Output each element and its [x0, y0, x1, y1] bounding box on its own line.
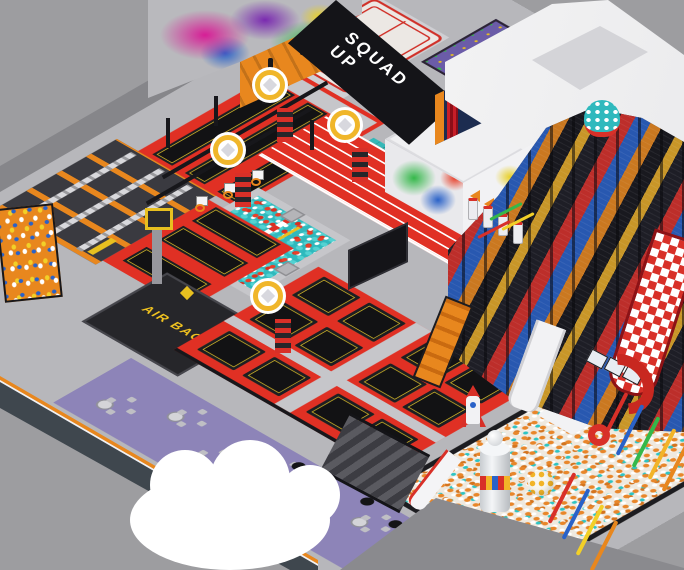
tower-ball [487, 430, 503, 446]
entrance-turnstile [513, 222, 523, 244]
trampoline-park-render: AIR BAG [0, 0, 684, 570]
hoop-rim [223, 191, 233, 199]
chairs [359, 526, 370, 532]
ring-core [221, 143, 235, 157]
tower-stripe-band [480, 476, 510, 490]
chairs [176, 421, 187, 427]
hoop-rim [251, 178, 261, 186]
cafe-table [92, 397, 117, 412]
basketball-hoop [252, 170, 264, 180]
stage-orange-wall [435, 91, 444, 145]
cafe-table [163, 409, 188, 424]
target-tower [275, 319, 291, 353]
jump-tower-platform [145, 208, 173, 230]
steel-rig-post [310, 120, 314, 150]
climbing-wall [0, 203, 63, 303]
chairs [105, 409, 116, 415]
dome-ball-topper [584, 100, 620, 137]
cloud-part [280, 465, 340, 525]
ring-target [255, 70, 285, 100]
rocket-body [466, 396, 480, 424]
target-tower [235, 173, 251, 207]
entrance-turnstile [468, 198, 478, 220]
steel-rig-post [166, 118, 170, 148]
cafe-table [347, 515, 372, 530]
ring-target [213, 135, 243, 165]
steel-rig-post [214, 96, 218, 126]
rocket-fin [480, 415, 486, 427]
rocket-prop [462, 385, 484, 431]
polka-dot-ball [528, 470, 554, 496]
target-tower [277, 108, 293, 142]
target-tower [352, 148, 368, 182]
hoop-rim [195, 204, 205, 212]
player-silhouette [268, 58, 273, 69]
ring-target [253, 281, 283, 311]
ball-fountain-tower [480, 448, 510, 512]
rocket-window [470, 402, 476, 408]
basketball-hoop [196, 196, 208, 206]
cloud-part [210, 440, 290, 520]
ring-core [338, 118, 352, 132]
ring-target [330, 110, 360, 140]
ring-core [263, 78, 277, 92]
court-walkway [275, 323, 432, 413]
jump-tower-pole [152, 222, 162, 284]
ring-core [261, 289, 275, 303]
rocket-fin [460, 415, 466, 427]
